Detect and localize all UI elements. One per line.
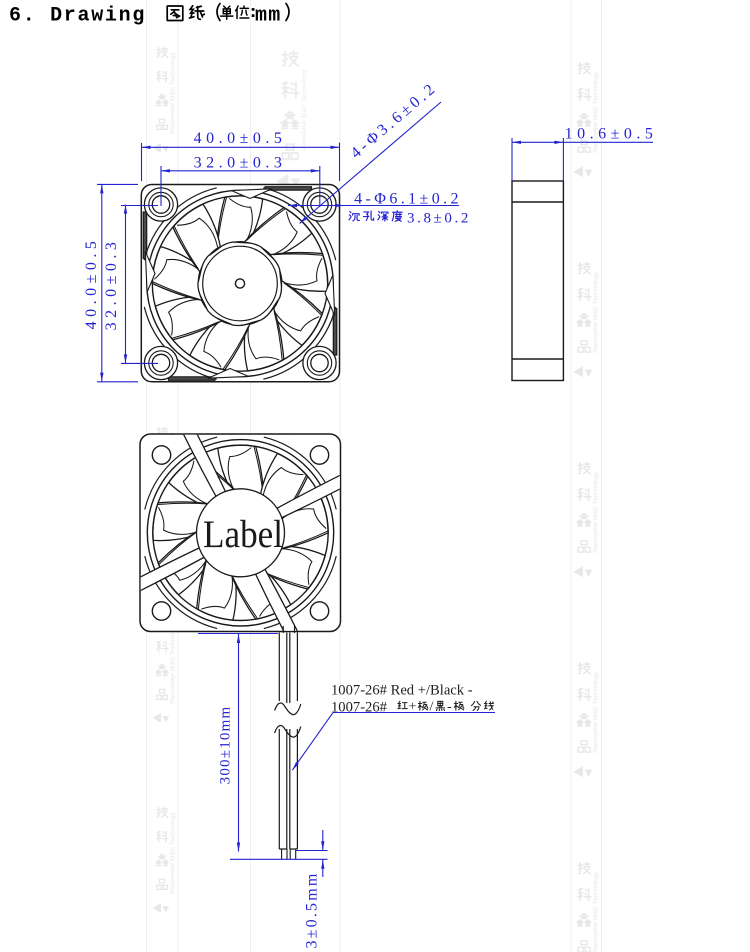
svg-text:10.6±0.5: 10.6±0.5 — [565, 126, 658, 143]
svg-text:40.0±0.5: 40.0±0.5 — [83, 237, 100, 330]
svg-text:/: / — [430, 700, 434, 715]
svg-text:+: + — [409, 700, 417, 715]
svg-text:Pacesetter M&E Technology: Pacesetter M&E Technology — [593, 670, 600, 752]
svg-text:Label: Label — [203, 513, 283, 556]
svg-text:300±10mm: 300±10mm — [218, 706, 234, 785]
svg-text:Pacesetter M&E Technology: Pacesetter M&E Technology — [170, 811, 177, 893]
svg-text:1007-26# Red +/Black -: 1007-26# Red +/Black - — [331, 683, 473, 699]
svg-text:3.8±0.2: 3.8±0.2 — [407, 211, 471, 227]
svg-text:Pacesetter M&E Technology: Pacesetter M&E Technology — [593, 470, 600, 552]
svg-text:6. Drawing: 6. Drawing — [9, 5, 146, 28]
svg-text:32.0±0.3: 32.0±0.3 — [194, 155, 287, 172]
svg-text:Pacesetter M&E Technology: Pacesetter M&E Technology — [593, 270, 600, 352]
svg-text:Pacesetter M&E Technology: Pacesetter M&E Technology — [593, 870, 600, 952]
svg-text:1007-26#: 1007-26# — [331, 700, 388, 716]
svg-text:3±0.5mm: 3±0.5mm — [304, 871, 321, 948]
svg-text:40.0±0.5: 40.0±0.5 — [194, 130, 287, 147]
svg-text:-: - — [447, 700, 452, 715]
svg-text:Pacesetter M&E Technology: Pacesetter M&E Technology — [170, 621, 177, 703]
svg-text:4-Φ6.1±0.2: 4-Φ6.1±0.2 — [354, 191, 462, 208]
svg-text:mm: mm — [255, 5, 281, 28]
svg-text:32.0±0.3: 32.0±0.3 — [103, 238, 120, 331]
svg-text:Pacesetter M&E Technology: Pacesetter M&E Technology — [170, 51, 177, 133]
svg-text:Pacesetter M&E Technology: Pacesetter M&E Technology — [301, 68, 308, 150]
